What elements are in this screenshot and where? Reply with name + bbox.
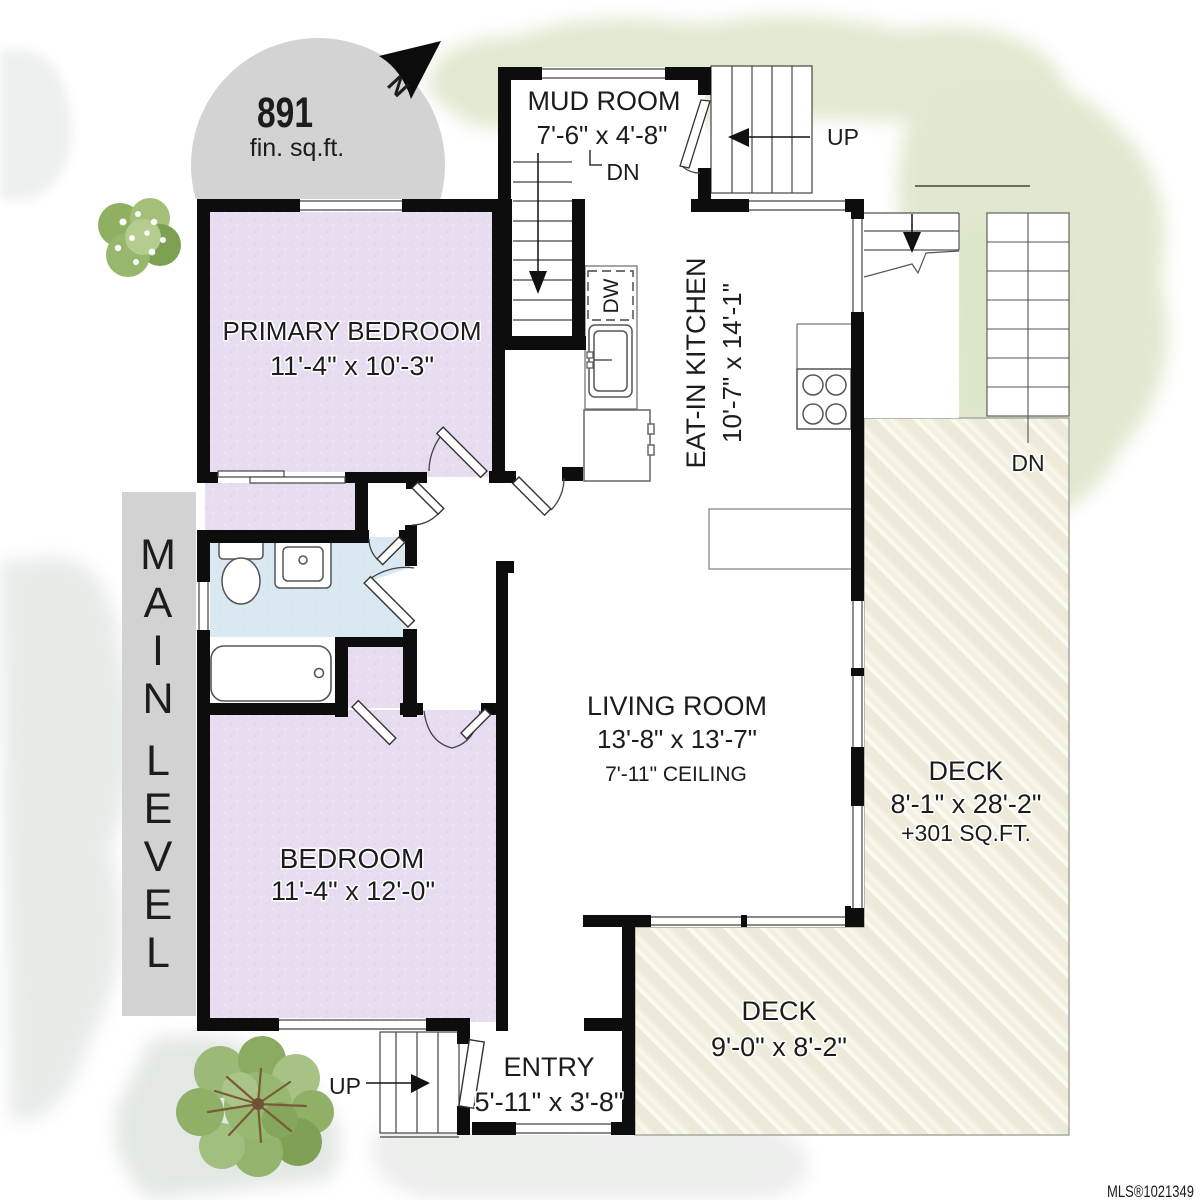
svg-text:A: A <box>144 579 173 627</box>
svg-text:M: M <box>140 531 176 579</box>
svg-text:MLS®1021349: MLS®1021349 <box>1107 1183 1194 1200</box>
svg-text:E: E <box>144 881 173 929</box>
svg-text:E: E <box>144 785 173 833</box>
svg-text:L: L <box>146 929 170 977</box>
svg-text:8'-1" x 28'-2": 8'-1" x 28'-2" <box>890 789 1041 819</box>
svg-text:UP: UP <box>827 124 859 150</box>
svg-text:V: V <box>144 833 173 881</box>
svg-text:10'-7" x 14'-1": 10'-7" x 14'-1" <box>717 283 747 443</box>
svg-text:7'-6" x 4'-8": 7'-6" x 4'-8" <box>537 120 668 150</box>
svg-text:I: I <box>152 627 164 675</box>
svg-text:DN: DN <box>606 159 639 185</box>
svg-text:N: N <box>142 675 173 723</box>
svg-text:EAT-IN KITCHEN: EAT-IN KITCHEN <box>681 257 711 468</box>
svg-text:UP: UP <box>329 1073 361 1099</box>
svg-text:DECK: DECK <box>741 996 816 1026</box>
svg-text:PRIMARY BEDROOM: PRIMARY BEDROOM <box>222 316 481 346</box>
svg-text:fin. sq.ft.: fin. sq.ft. <box>250 134 344 162</box>
svg-text:DW: DW <box>600 278 623 313</box>
svg-text:L: L <box>146 737 170 785</box>
svg-text:DECK: DECK <box>928 756 1003 786</box>
svg-text:9'-0" x 8'-2": 9'-0" x 8'-2" <box>711 1032 847 1062</box>
svg-text:ENTRY: ENTRY <box>503 1052 594 1082</box>
svg-text:11'-4" x 12'-0": 11'-4" x 12'-0" <box>271 876 435 906</box>
svg-text:BEDROOM: BEDROOM <box>280 843 425 874</box>
svg-text:891: 891 <box>257 89 313 137</box>
svg-text:11'-4" x 10'-3": 11'-4" x 10'-3" <box>270 351 434 381</box>
svg-text:LIVING ROOM: LIVING ROOM <box>587 691 767 721</box>
svg-text:DN: DN <box>1011 450 1044 476</box>
svg-text:7'-11" CEILING: 7'-11" CEILING <box>605 763 747 786</box>
svg-text:5'-11" x 3'-8": 5'-11" x 3'-8" <box>474 1087 623 1117</box>
svg-text:13'-8" x 13'-7": 13'-8" x 13'-7" <box>597 724 757 754</box>
svg-text:MUD ROOM: MUD ROOM <box>528 86 681 116</box>
svg-text:+301 SQ.FT.: +301 SQ.FT. <box>901 820 1031 846</box>
